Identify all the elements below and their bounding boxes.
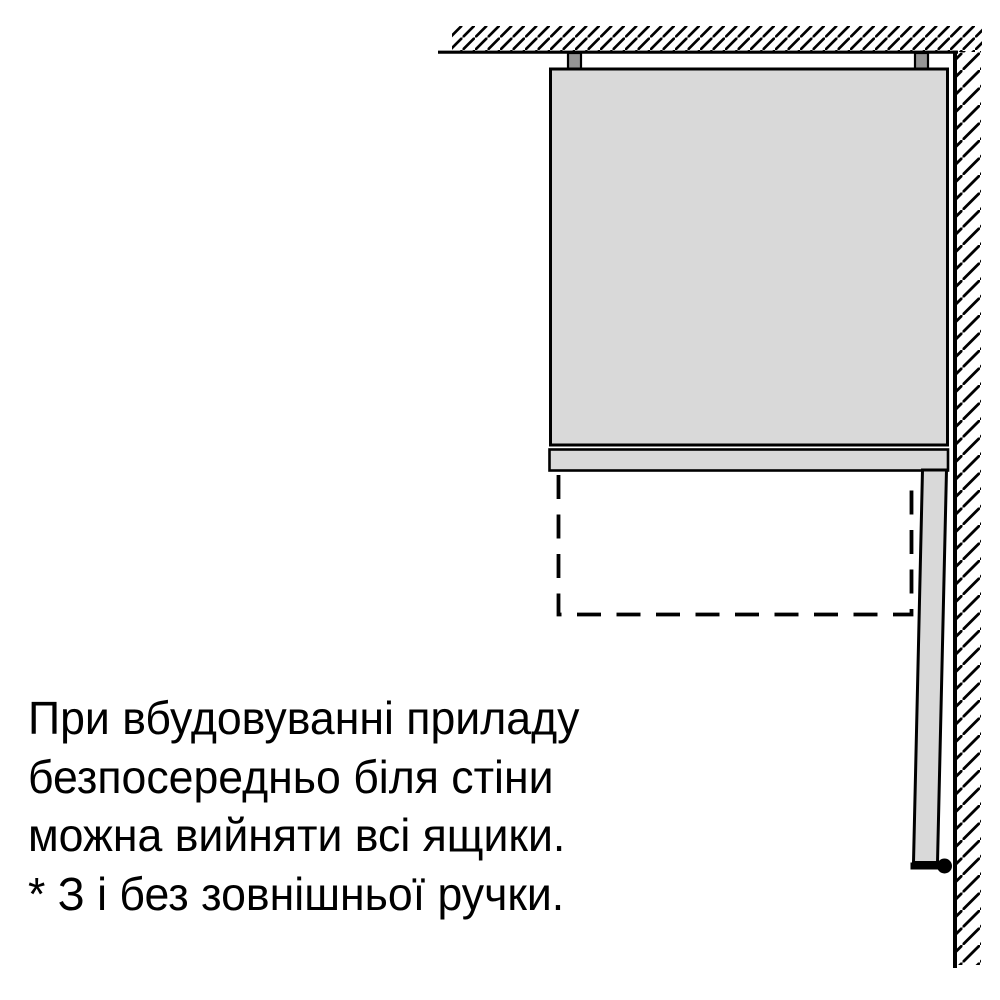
- caption-line-1: При вбудовуванні приладу: [28, 689, 579, 748]
- caption-line-4: * З і без зовнішньої ручки.: [28, 865, 579, 924]
- wall-hatch: [957, 51, 981, 965]
- caption: При вбудовуванні приладу безпосередньо б…: [28, 689, 579, 923]
- appliance-base-panel: [550, 450, 949, 471]
- page: При вбудовуванні приладу безпосередньо б…: [0, 0, 1000, 1000]
- caption-line-3: можна вийняти всі ящики.: [28, 806, 579, 865]
- appliance-body: [551, 69, 948, 445]
- ceiling-hatch: [452, 26, 982, 52]
- appliance-door-open: [914, 470, 947, 863]
- drawer-zone-dashed-outline: [559, 475, 912, 615]
- mounting-bracket-left: [568, 53, 581, 69]
- door-hinge-pivot-dot: [937, 859, 952, 874]
- mounting-bracket-right: [915, 53, 928, 69]
- caption-line-2: безпосередньо біля стіни: [28, 748, 579, 807]
